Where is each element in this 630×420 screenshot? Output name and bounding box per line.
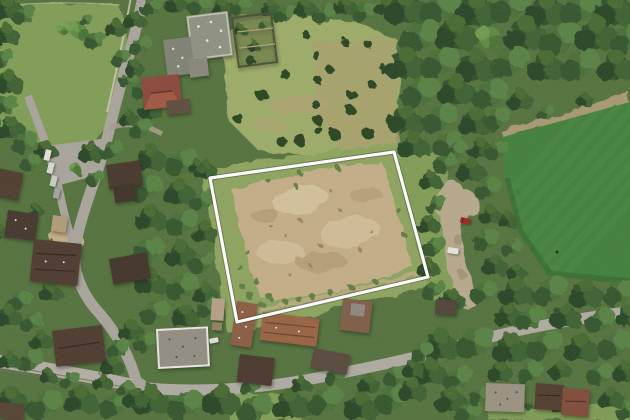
screenshot-root [0,0,630,420]
grain-overlay [0,0,630,420]
aerial-photo [0,0,630,420]
